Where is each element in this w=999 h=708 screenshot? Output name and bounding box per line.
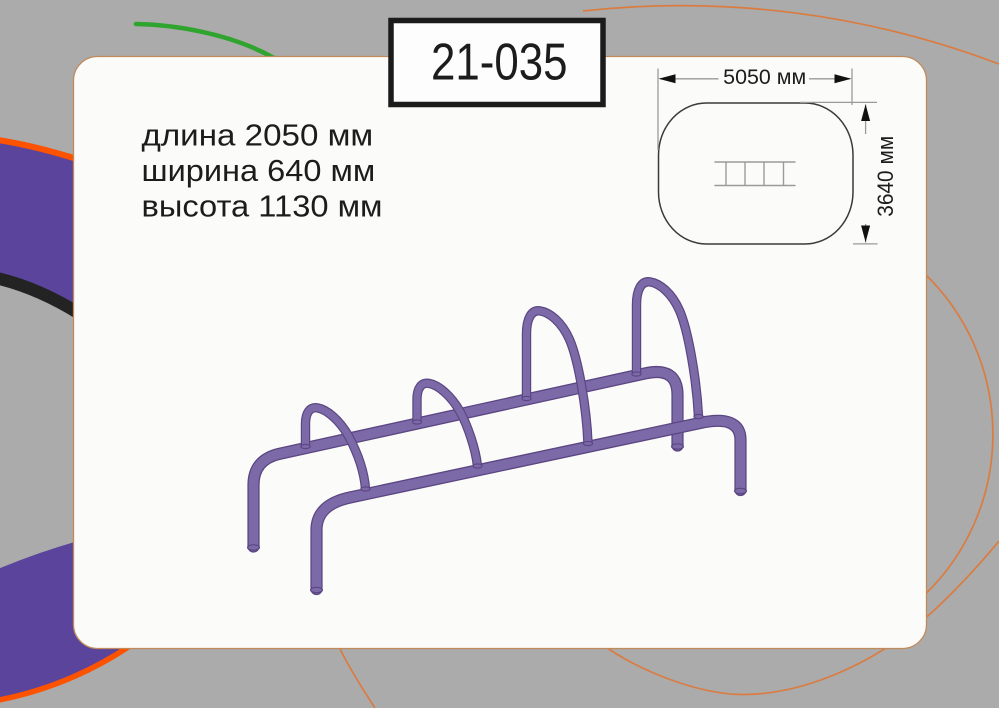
svg-text:5050 мм: 5050 мм <box>723 65 806 89</box>
svg-text:ширина 640 мм: ширина 640 мм <box>142 153 376 188</box>
svg-text:21-035: 21-035 <box>431 32 568 90</box>
svg-text:длина 2050 мм: длина 2050 мм <box>142 117 374 152</box>
svg-text:3640 мм: 3640 мм <box>873 136 898 217</box>
svg-text:высота 1130 мм: высота 1130 мм <box>142 189 383 224</box>
